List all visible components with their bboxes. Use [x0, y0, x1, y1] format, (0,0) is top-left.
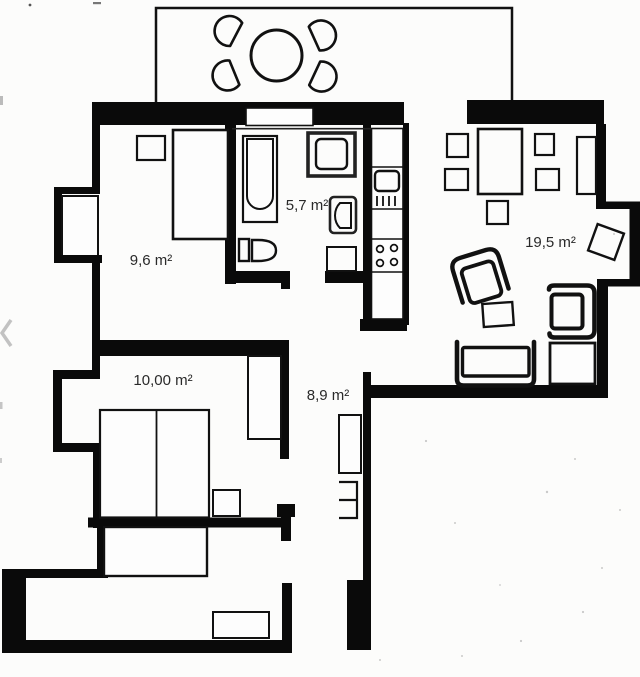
- svg-text:9,6 m²: 9,6 m²: [130, 252, 173, 269]
- svg-text:19,5 m²: 19,5 m²: [525, 234, 576, 251]
- svg-text:8,9 m²: 8,9 m²: [307, 387, 350, 404]
- svg-text:10,00 m²: 10,00 m²: [133, 372, 192, 389]
- svg-text:5,7 m²: 5,7 m²: [286, 197, 329, 214]
